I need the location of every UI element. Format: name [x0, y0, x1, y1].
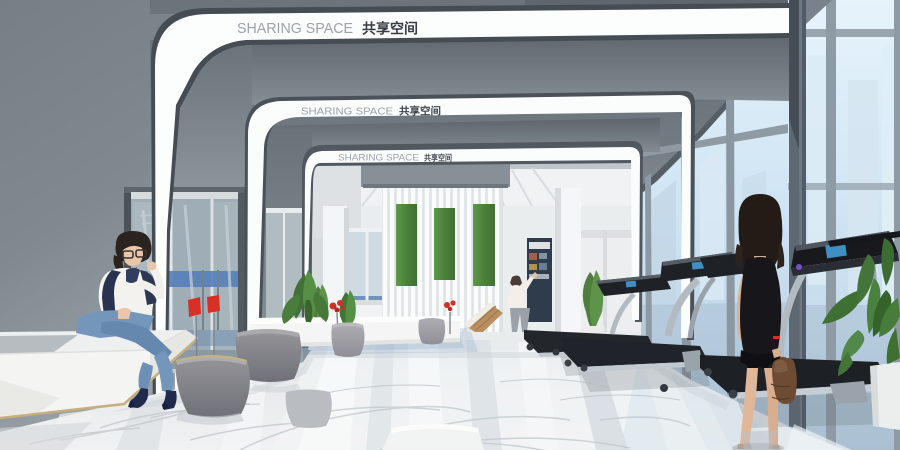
svg-text:共享空间: 共享空间: [362, 21, 418, 37]
svg-text:共享空间: 共享空间: [399, 105, 441, 118]
svg-text:SHARING SPACE: SHARING SPACE: [301, 106, 393, 118]
svg-text:SHARING SPACE: SHARING SPACE: [338, 153, 419, 163]
svg-text:共享空间: 共享空间: [424, 153, 452, 163]
svg-text:SHARING SPACE: SHARING SPACE: [237, 20, 353, 37]
